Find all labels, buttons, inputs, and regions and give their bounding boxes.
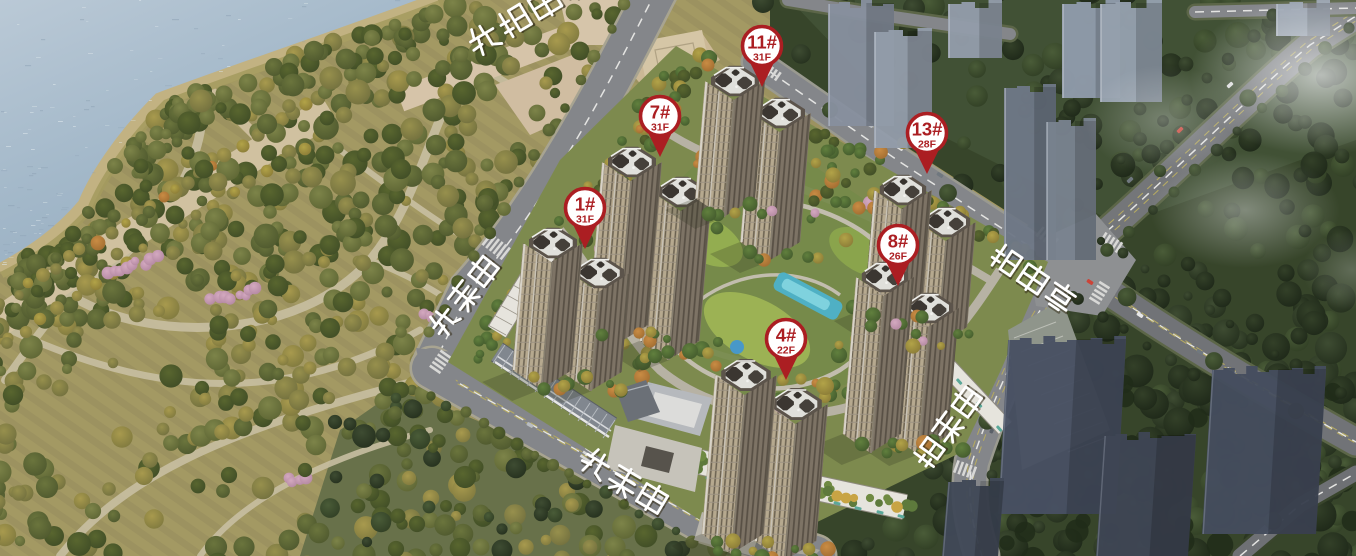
svg-text:31F: 31F <box>651 122 670 134</box>
svg-text:7#: 7# <box>650 102 671 123</box>
svg-text:31F: 31F <box>576 214 595 226</box>
svg-text:1#: 1# <box>575 194 596 215</box>
svg-text:11#: 11# <box>747 32 777 53</box>
svg-text:26F: 26F <box>889 251 908 263</box>
svg-text:8#: 8# <box>888 231 909 252</box>
svg-text:13#: 13# <box>912 119 943 140</box>
svg-text:31F: 31F <box>753 52 772 64</box>
svg-text:28F: 28F <box>918 139 937 151</box>
svg-text:22F: 22F <box>777 345 796 357</box>
svg-text:4#: 4# <box>776 325 797 346</box>
